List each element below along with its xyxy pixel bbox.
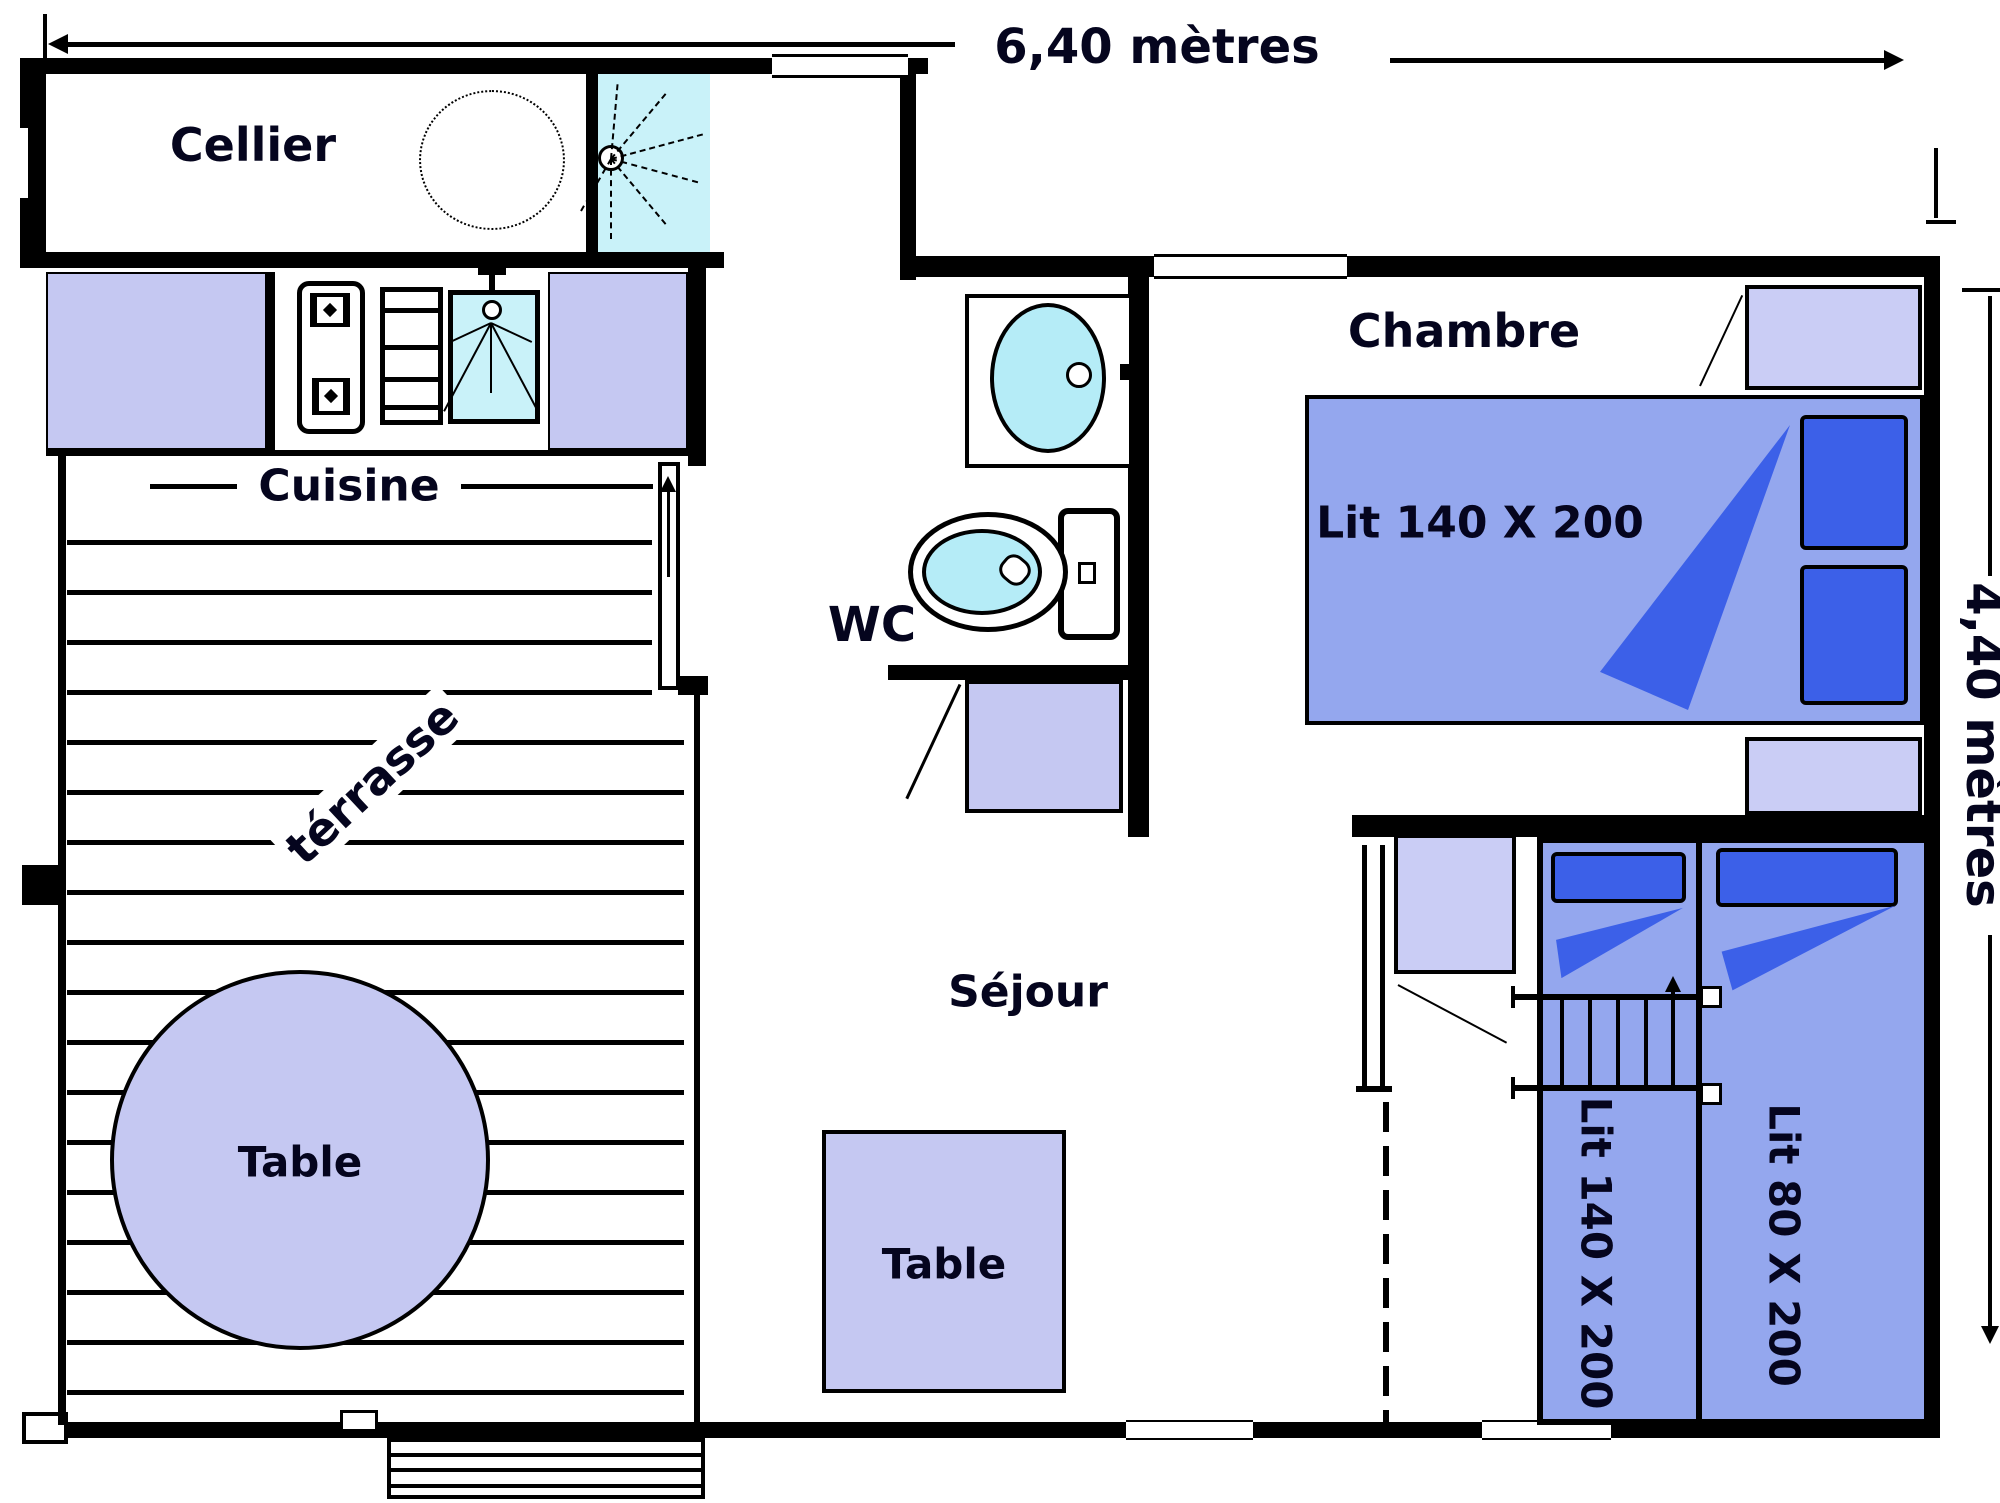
wc-label: WC [828, 597, 916, 653]
cellier-bottom-wall [30, 252, 724, 268]
door-arrow-up-icon [660, 476, 676, 492]
bunk-wardrobe [1394, 834, 1516, 974]
double-bed-pillow [1800, 415, 1908, 550]
partition-track-line [1362, 845, 1367, 1090]
cellier-window [772, 54, 908, 78]
bunk-divider [1696, 843, 1702, 1419]
washbasin-drain-icon [1066, 362, 1092, 388]
ladder-rung [1560, 1000, 1564, 1085]
ladder-arrow-up-icon [1665, 976, 1681, 992]
kitchen-bottom-line [46, 450, 688, 456]
ladder-rail [1513, 1085, 1713, 1091]
kitchen-counter-left [46, 272, 267, 450]
chambre-door-swing-line [1398, 984, 1508, 1044]
main-top-wall [900, 256, 1940, 277]
bunk-bed-pillow [1551, 852, 1686, 903]
cuisine-label: Cuisine [258, 461, 439, 512]
ladder-rail-cap [1511, 1077, 1515, 1099]
ladder-rail [1513, 994, 1713, 1000]
right-dimension-tick-a [1926, 220, 1956, 224]
cellier-left-nub-top [20, 58, 46, 128]
right-dimension-arrow-down-icon [1981, 1326, 1999, 1344]
wc-bottom-wall [888, 665, 1149, 680]
door-foot-block [678, 676, 708, 695]
bunk-bed-label: Lit 140 X 200 [1572, 1097, 1621, 1410]
sejour-label: Séjour [948, 967, 1108, 1018]
faucet-icon [478, 266, 506, 275]
stair-line [391, 1468, 701, 1472]
top-dimension-tick [43, 14, 47, 60]
top-dimension-line-left [64, 42, 955, 47]
top-dimension-line-right [1390, 58, 1886, 63]
deck-line [67, 840, 684, 845]
partition-track-line [1380, 845, 1385, 1090]
bunk-post-marker [1700, 1083, 1722, 1105]
right-dimension-line-top [1988, 296, 1992, 576]
cuisine-line-right [461, 484, 653, 489]
stair-line [391, 1453, 701, 1457]
shelf-line [385, 345, 438, 350]
terrasse-edge-marker [340, 1410, 378, 1432]
deck-line [67, 940, 684, 945]
shelf-line [385, 405, 438, 410]
right-dimension-line-bottom [1988, 935, 1992, 1327]
deck-line [67, 890, 684, 895]
terrasse-left-nub [22, 865, 58, 905]
faucet-stem [489, 275, 495, 292]
chambre-window [1154, 254, 1347, 279]
floor-plan: 6,40 mètres 4,40 mètres Cellier [0, 0, 2000, 1503]
kitchen-right-wall [688, 256, 706, 466]
deck-line [67, 1390, 684, 1395]
ladder-rung [1644, 1000, 1648, 1085]
chambre-label: Chambre [1348, 304, 1580, 358]
terrasse-left-edge [58, 455, 66, 1425]
cuisine-line-left [150, 484, 237, 489]
sink-spray-line [490, 323, 492, 393]
deck-line [67, 590, 652, 595]
boiler-icon [419, 90, 565, 230]
double-bed-pillow [1800, 565, 1908, 705]
step-wall [900, 58, 916, 280]
partition-track-foot [1356, 1086, 1392, 1092]
deck-line [67, 540, 652, 545]
top-dimension-label: 6,40 mètres [994, 19, 1319, 75]
partition-dashed-line [1383, 1102, 1389, 1422]
nightstand-bottom [1745, 737, 1922, 815]
sejour-window [1126, 1420, 1253, 1440]
deck-line [67, 640, 652, 645]
shelf-line [385, 377, 438, 382]
kitchen-counter-right [548, 272, 688, 450]
shower-spray-ray [610, 159, 612, 239]
double-bed-label: Lit 140 X 200 [1316, 498, 1644, 549]
nightstand-top [1745, 285, 1922, 390]
washbasin-tap-icon [1120, 364, 1134, 380]
kitchen-counter-divider [267, 272, 275, 450]
deck-line [67, 690, 652, 695]
terrasse-label: térrasse [270, 685, 473, 880]
terrasse-table-label: Table [238, 1138, 363, 1187]
top-dimension-arrow-right-icon [1884, 50, 1904, 70]
cellier-label: Cellier [170, 118, 336, 172]
ladder-arrow-line [1671, 990, 1675, 1085]
stair-line [391, 1484, 701, 1488]
door-arrow-line [667, 492, 670, 577]
right-dimension-label: 4,40 mètres [1955, 582, 2000, 907]
sink-drain-icon [482, 300, 502, 320]
deck-line [67, 1340, 684, 1345]
right-dimension-tick-top [1934, 148, 1938, 218]
shelf-line [385, 308, 438, 313]
ladder-rung [1616, 1000, 1620, 1085]
toilet-button-icon [1078, 562, 1096, 584]
single-bed-label: Lit 80 X 200 [1760, 1103, 1809, 1387]
sejour-table-label: Table [882, 1240, 1007, 1289]
ladder-rung [1588, 1000, 1592, 1085]
terrasse-sejour-line [694, 695, 700, 1425]
bunk-post-marker [1700, 986, 1722, 1008]
single-bed-pillow [1716, 848, 1898, 907]
right-dimension-tick-b [1962, 288, 2000, 292]
wc-door-swing-line [905, 684, 961, 799]
ladder-rail-cap [1511, 986, 1515, 1008]
wc-cupboard [965, 680, 1123, 813]
chambre-leader-line [1699, 295, 1743, 386]
